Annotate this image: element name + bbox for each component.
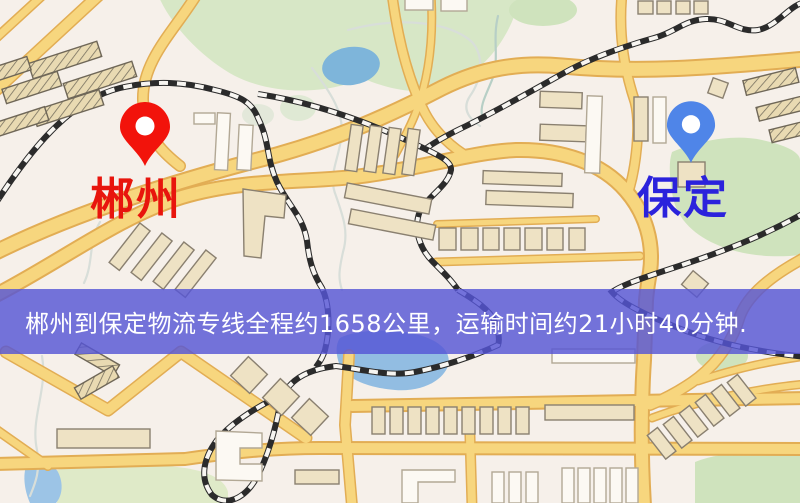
destination-pin xyxy=(665,100,719,166)
map-screenshot: 郴州 保定 郴州到保定物流专线全程约1658公里，运输时间约21小时40分钟. xyxy=(0,0,800,503)
map-background xyxy=(0,0,800,503)
route-info-text: 郴州到保定物流专线全程约1658公里，运输时间约21小时40分钟. xyxy=(0,304,747,339)
origin-pin xyxy=(118,102,172,168)
origin-pin-icon xyxy=(118,102,172,168)
destination-pin-icon xyxy=(665,100,717,166)
origin-city-label: 郴州 xyxy=(90,178,182,222)
destination-city-label: 保定 xyxy=(637,177,729,221)
route-info-banner: 郴州到保定物流专线全程约1658公里，运输时间约21小时40分钟. xyxy=(0,289,800,354)
